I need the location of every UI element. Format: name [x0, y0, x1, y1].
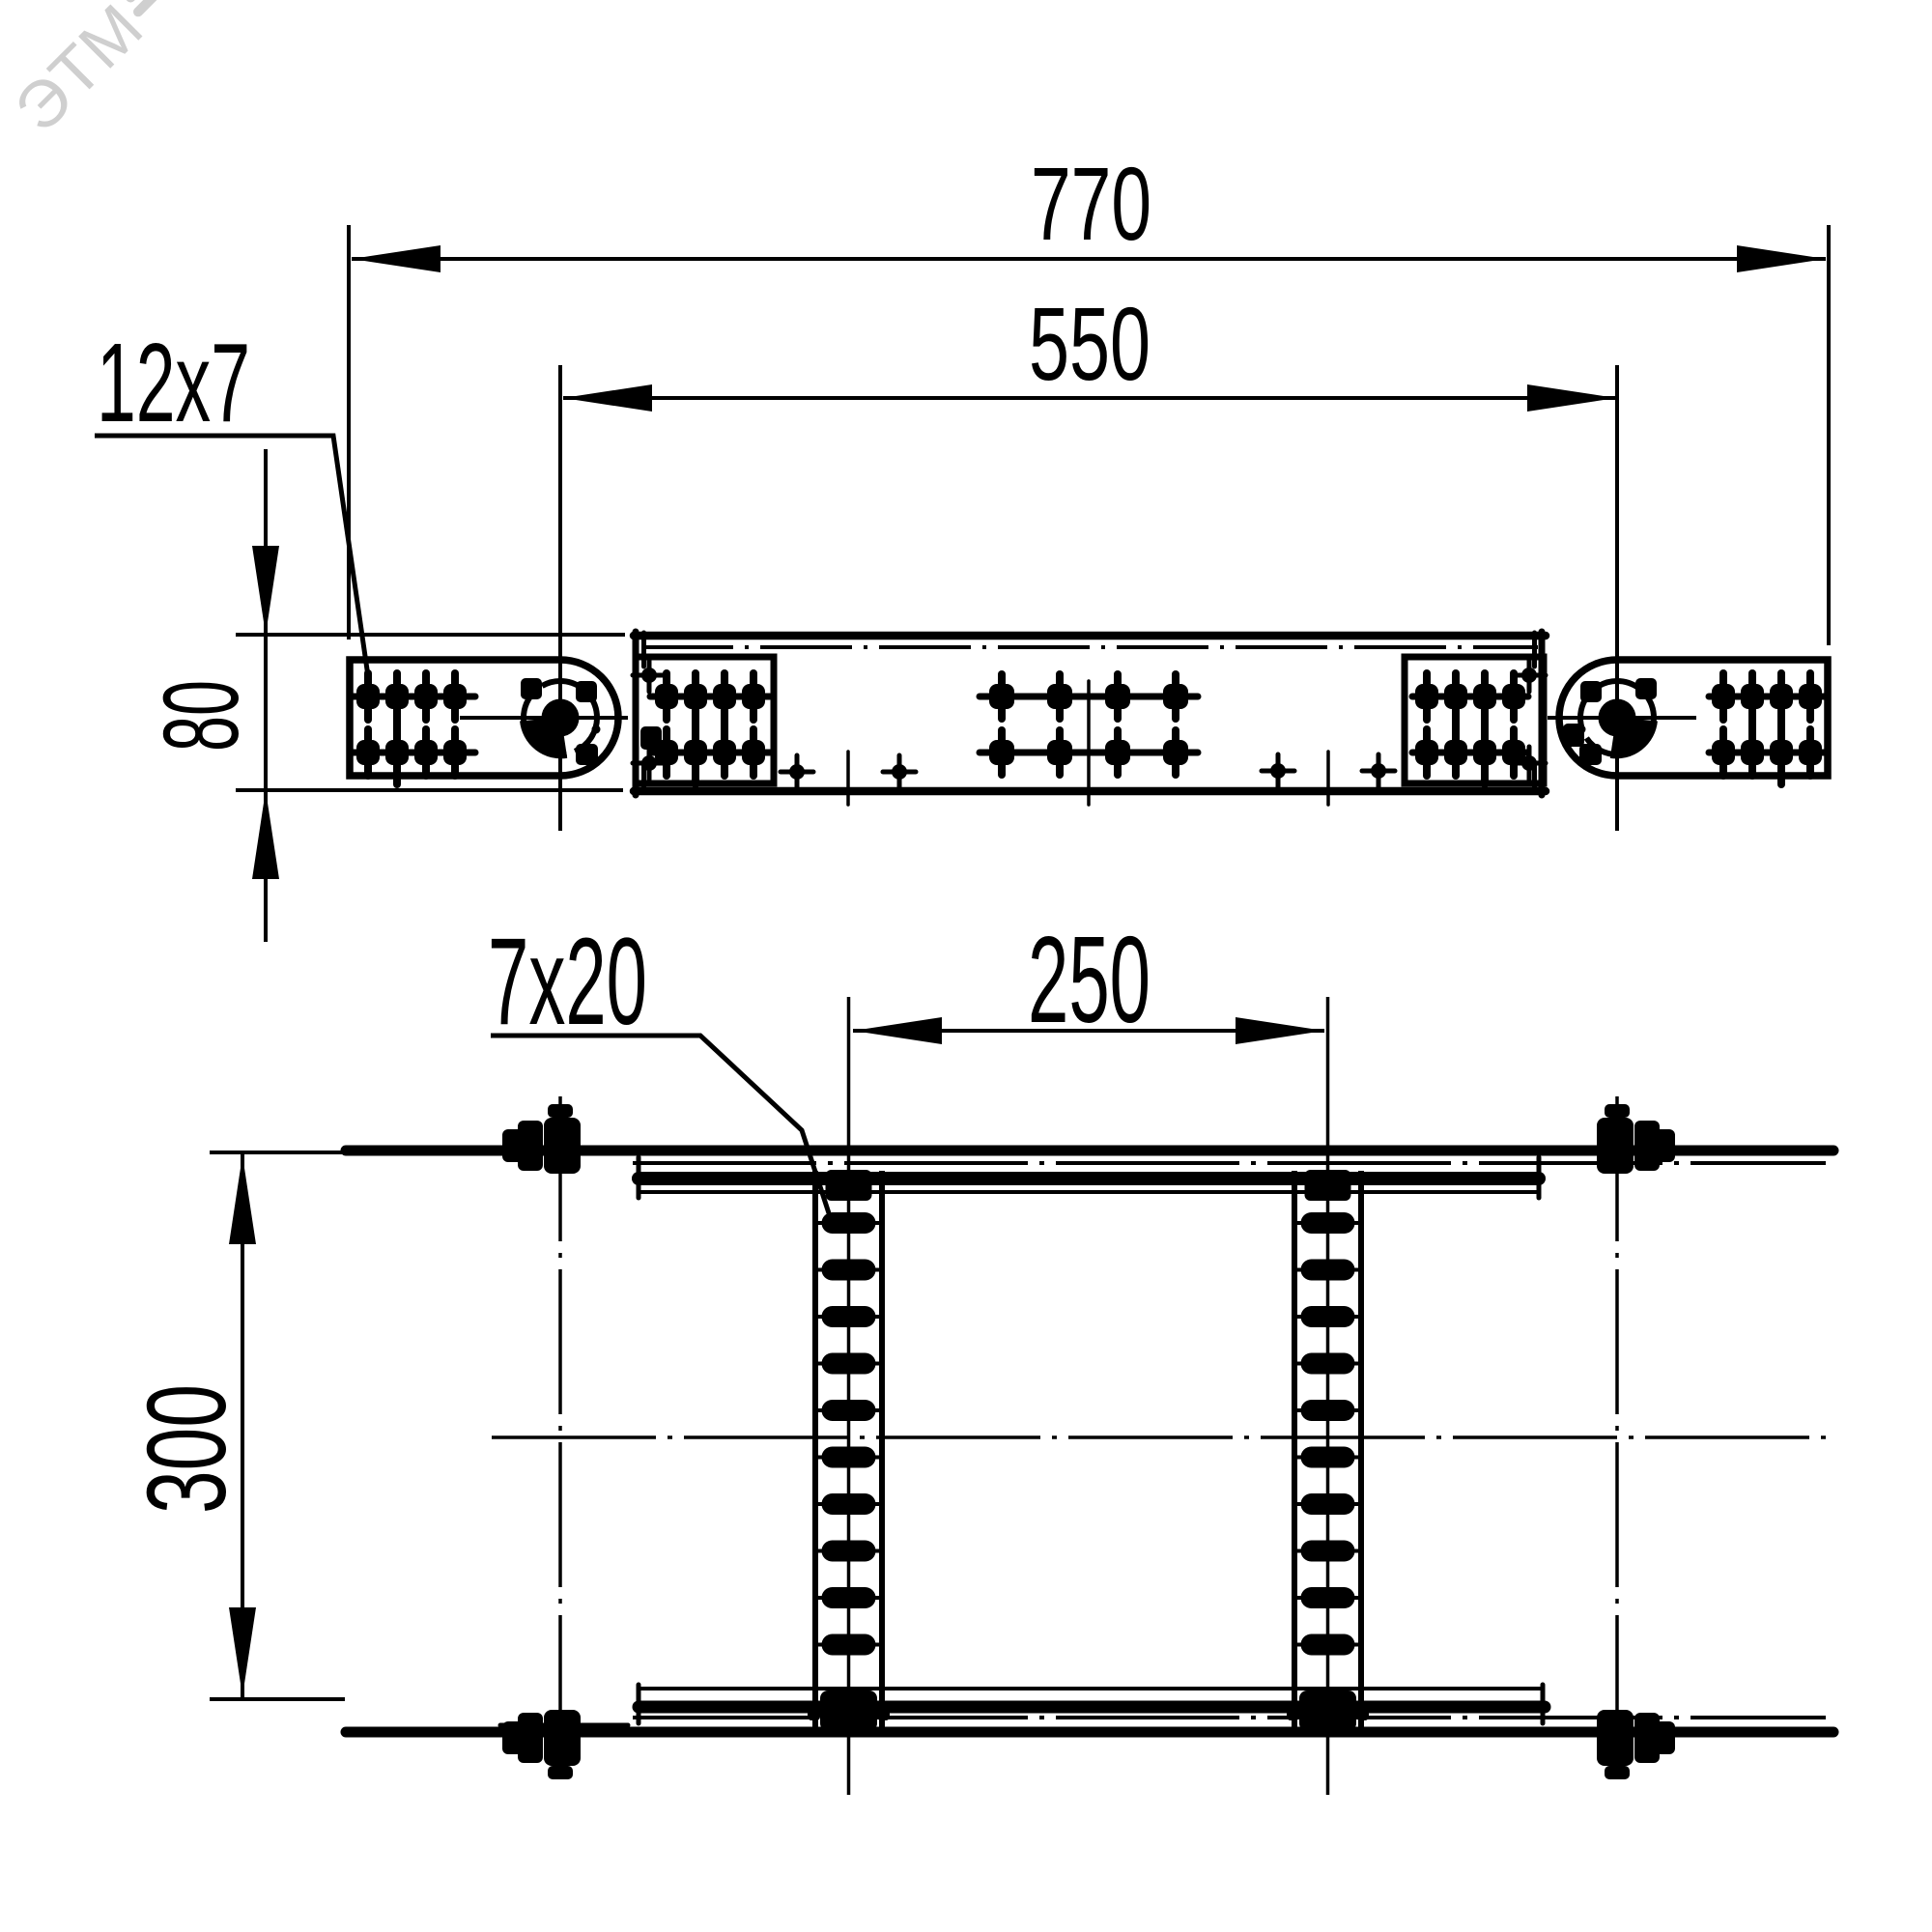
svg-text:300: 300 [124, 1384, 249, 1514]
svg-text:250: 250 [1028, 911, 1151, 1048]
svg-text:550: 550 [1029, 285, 1151, 402]
svg-text:770: 770 [1031, 145, 1151, 262]
svg-text:7x20: 7x20 [488, 913, 647, 1051]
svg-text:80: 80 [142, 680, 261, 752]
svg-text:12x7: 12x7 [97, 320, 250, 445]
